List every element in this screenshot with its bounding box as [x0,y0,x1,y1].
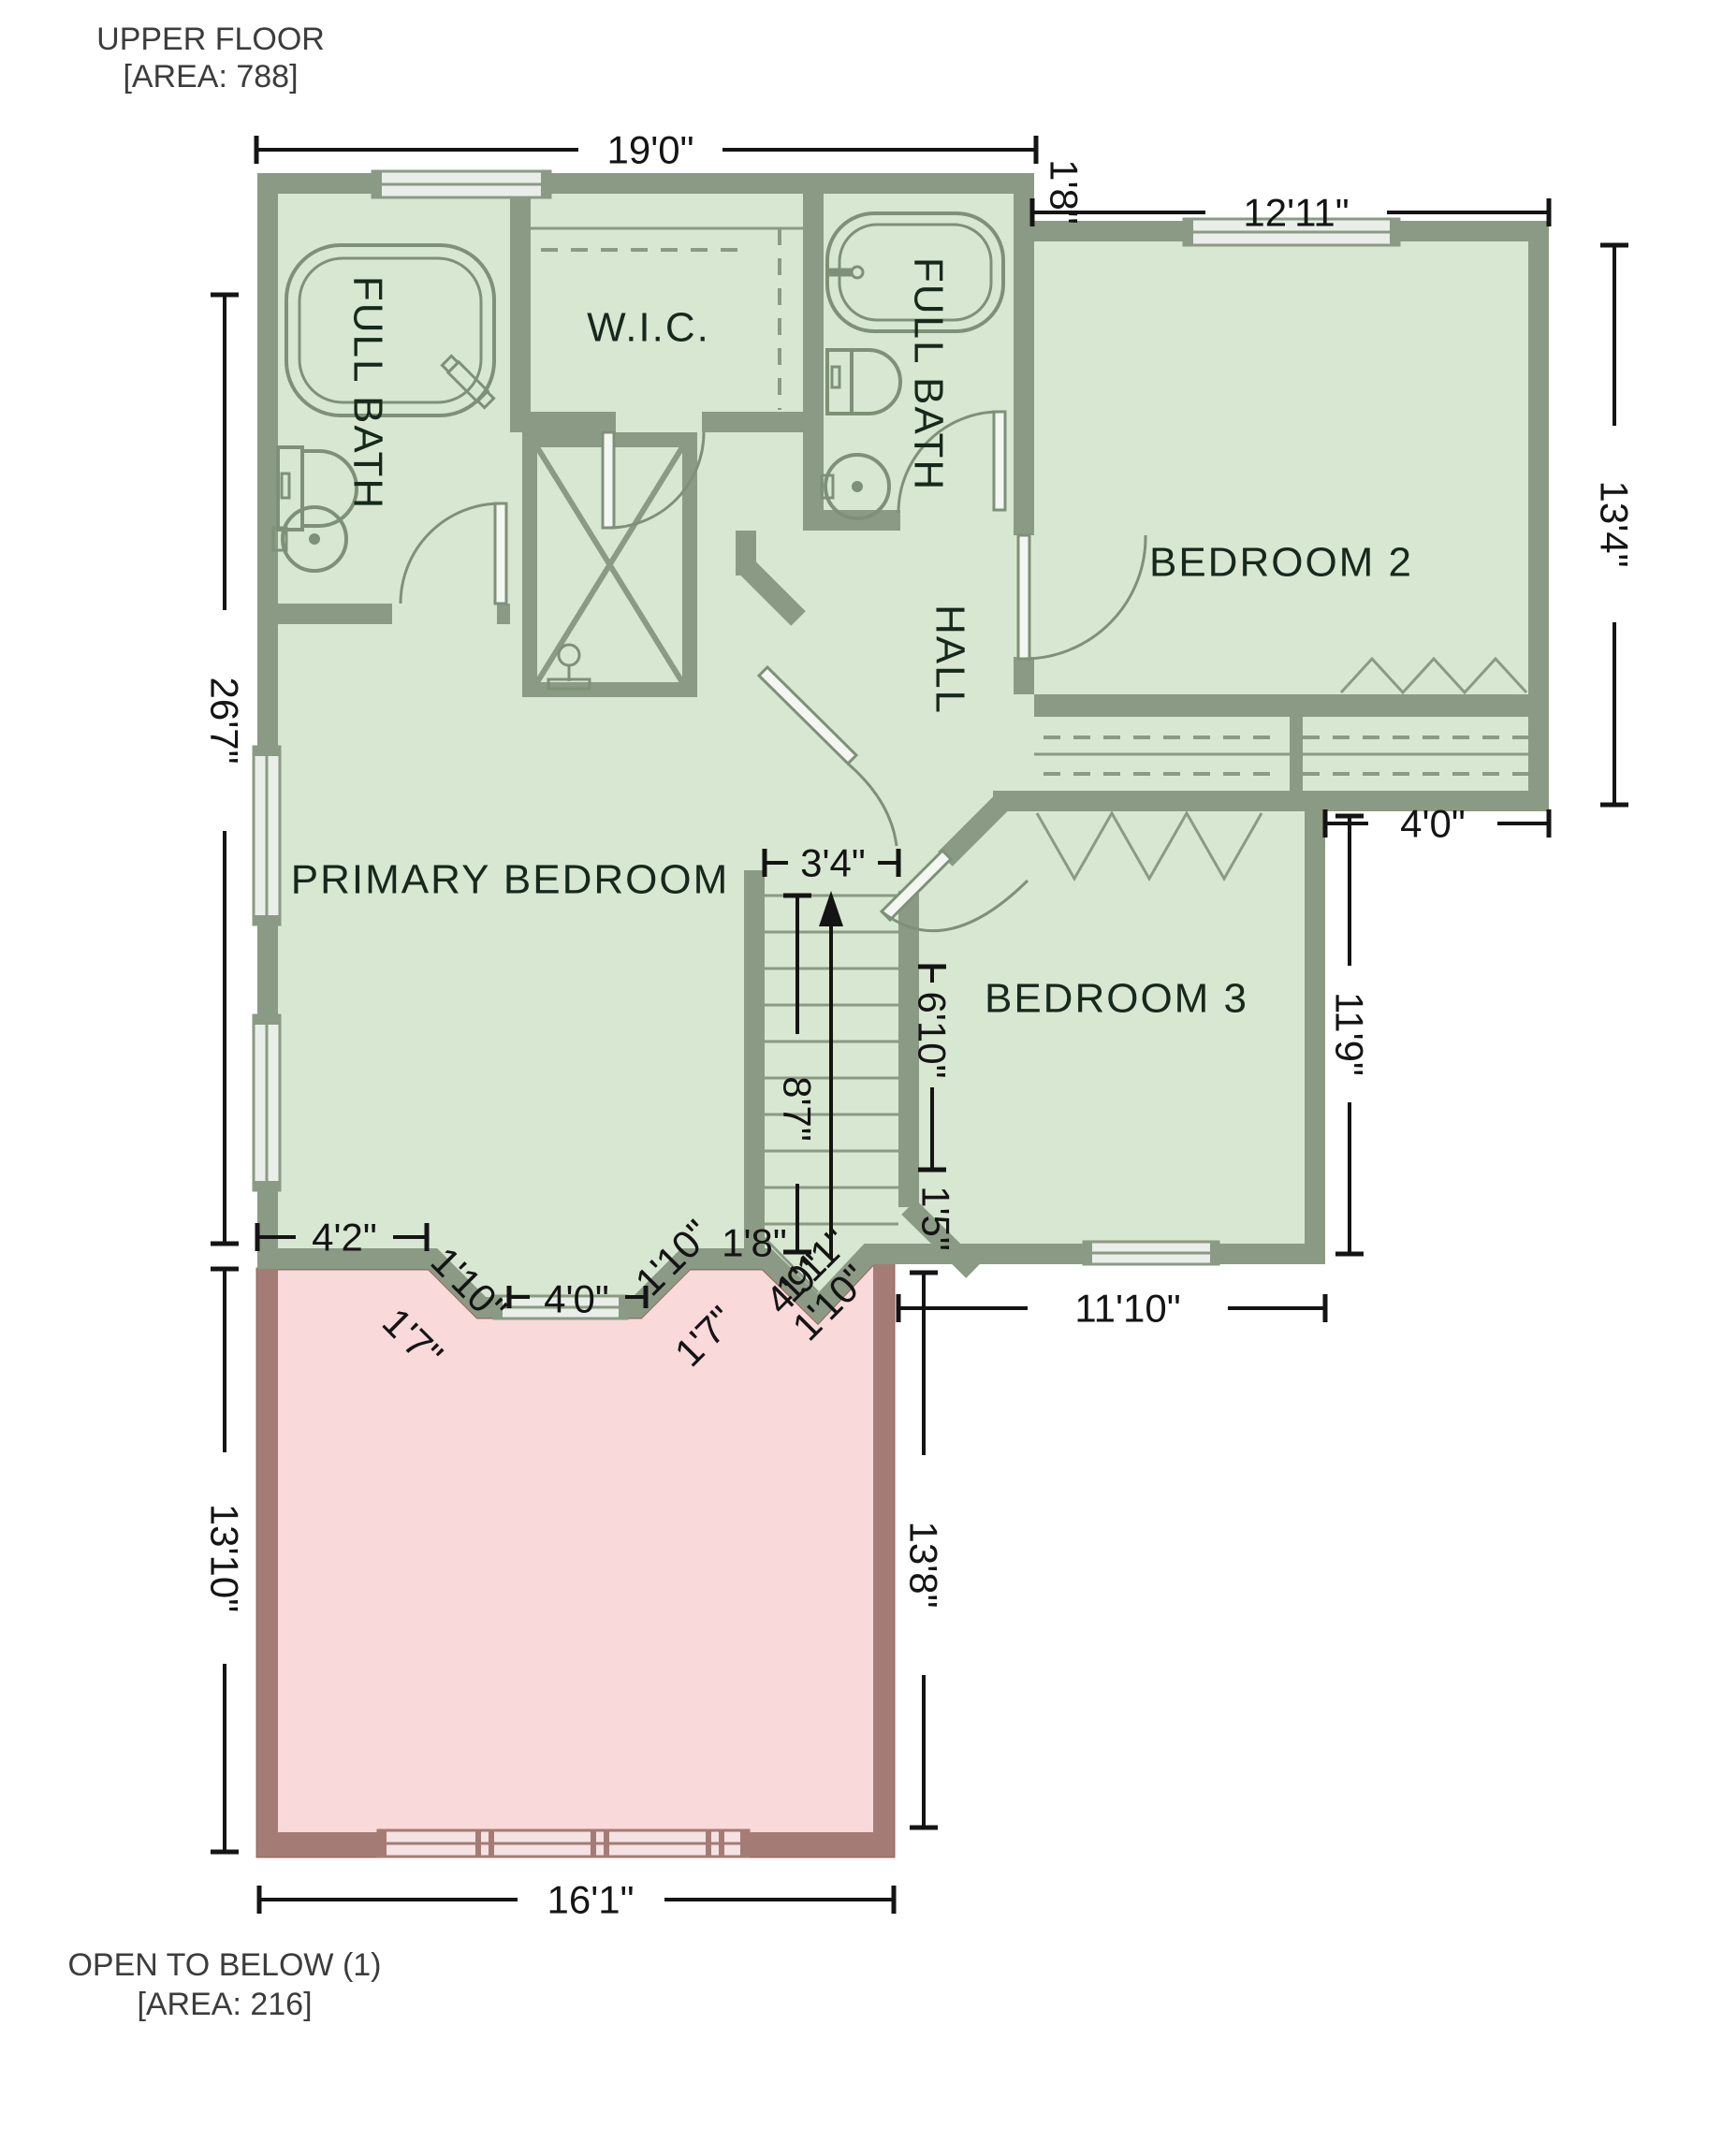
dim-left-height: 26'7" [203,295,247,1244]
svg-text:13'4": 13'4" [1593,480,1637,567]
room-label-hall: HALL [927,605,973,715]
bath1-window [372,171,550,197]
svg-text:4'0": 4'0" [1400,802,1466,846]
bedroom3-window [1084,1242,1219,1264]
dim-open-left-height: 13'10" [203,1269,247,1852]
svg-text:11'9": 11'9" [1328,992,1372,1076]
dim-bedroom2-height: 13'4" [1593,245,1637,805]
room-label-wic: W.I.C. [587,305,710,351]
open-to-below-area [257,1264,894,1857]
svg-text:8'7": 8'7" [776,1076,820,1142]
dim-open-right-height: 13'8" [902,1273,946,1828]
dim-bedroom3-width: 11'10" [898,1287,1325,1331]
svg-text:12'11": 12'11" [1243,191,1349,235]
room-label-full-bath-left: FULL BATH [345,276,391,510]
dim-open-width: 16'1" [259,1878,894,1922]
svg-text:26'7": 26'7" [203,677,247,764]
room-label-bedroom2: BEDROOM 2 [1149,540,1413,586]
upper-floor-area [254,171,1549,1323]
open-area-right-wall [873,1264,894,1857]
primary-window-lower [254,1015,280,1190]
room-label-full-bath-right: FULL BATH [906,257,952,491]
svg-text:6'10": 6'10" [911,991,955,1078]
svg-text:13'8": 13'8" [902,1521,946,1608]
svg-text:13'10": 13'10" [203,1504,247,1612]
dim-bedroom3-height: 11'9" [1328,816,1372,1254]
svg-text:4'0": 4'0" [544,1277,609,1321]
primary-window-upper [254,747,280,925]
floorplan-page: FULL BATH W.I.C. FULL BATH BEDROOM 2 HAL… [0,0,1722,2156]
floor-title-line1: UPPER FLOOR [96,22,325,57]
room-label-bedroom3: BEDROOM 3 [985,976,1248,1022]
dim-step-right: 1'8" [1043,159,1087,225]
svg-text:16'1": 16'1" [547,1878,634,1922]
room-label-primary-bedroom: PRIMARY BEDROOM [291,857,729,903]
open-area-window [378,1830,749,1857]
open-area-left-wall [257,1269,278,1857]
floor-title-line2: [AREA: 788] [123,59,298,95]
open-below-label-line1: OPEN TO BELOW (1) [67,1947,381,1983]
dim-corner: 1'5" [914,1186,958,1251]
floorplan-canvas: FULL BATH W.I.C. FULL BATH BEDROOM 2 HAL… [0,0,1722,2156]
svg-text:19'0": 19'0" [606,128,693,172]
svg-text:11'10": 11'10" [1074,1287,1180,1331]
dim-bay-flat-right: 1'8" [722,1221,787,1265]
svg-text:1'8": 1'8" [1043,159,1087,225]
svg-text:4'2": 4'2" [312,1216,377,1260]
open-area-floor [257,1264,894,1857]
svg-text:3'4": 3'4" [800,841,866,885]
open-below-label-line2: [AREA: 216] [137,1987,312,2022]
dim-overall-width: 19'0" [256,128,1036,172]
